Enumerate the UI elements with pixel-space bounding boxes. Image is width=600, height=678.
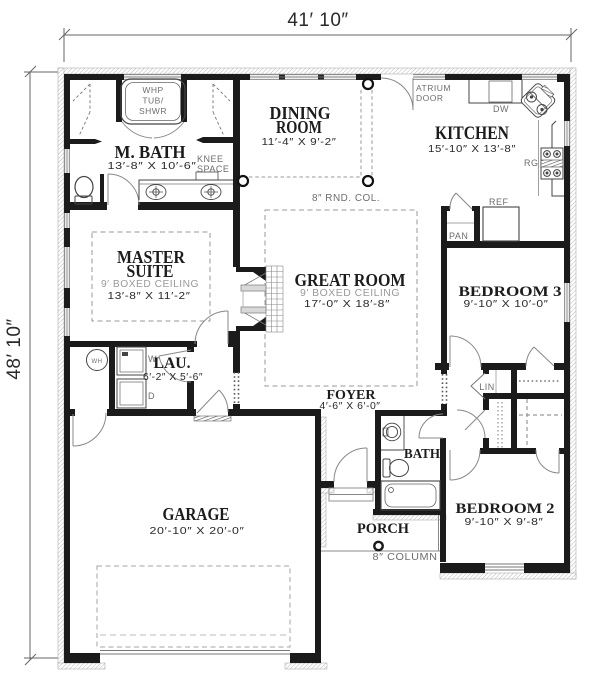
svg-text:LIN: LIN [479,382,495,392]
svg-text:15′-10″ X 13′-8″: 15′-10″ X 13′-8″ [428,144,516,155]
svg-text:9′ BOXED CEILING: 9′ BOXED CEILING [300,287,400,299]
svg-text:BATH: BATH [404,447,440,462]
svg-text:9′-10″ X 10′-0″: 9′-10″ X 10′-0″ [464,299,549,310]
svg-text:D: D [148,391,155,401]
svg-text:41′ 10″: 41′ 10″ [287,10,348,31]
svg-text:DOOR: DOOR [416,93,444,103]
svg-text:4′-6″ X 6′-0″: 4′-6″ X 6′-0″ [320,401,381,412]
svg-text:SPACE: SPACE [197,164,229,174]
svg-text:TUB/: TUB/ [142,96,164,106]
svg-text:RG: RG [524,158,539,168]
svg-text:LAU.: LAU. [154,355,191,372]
svg-text:8″ COLUMN: 8″ COLUMN [373,552,438,563]
svg-text:WHP: WHP [142,85,163,95]
svg-text:SHWR: SHWR [139,106,167,116]
svg-text:17′-0″ X 18′-8″: 17′-0″ X 18′-8″ [304,299,390,310]
svg-text:GARAGE: GARAGE [163,504,230,524]
svg-text:M. BATH: M. BATH [115,142,186,162]
svg-text:DW: DW [493,104,509,114]
svg-text:9′ BOXED CEILING: 9′ BOXED CEILING [101,278,199,290]
svg-text:BEDROOM 2: BEDROOM 2 [456,501,555,517]
svg-text:13′-8″ X 10′-6″: 13′-8″ X 10′-6″ [108,161,197,172]
svg-text:KNEE: KNEE [197,154,224,164]
svg-text:PAN: PAN [449,231,468,241]
svg-text:13′-8″ X 11′-2″: 13′-8″ X 11′-2″ [108,291,191,302]
svg-text:48′ 10″: 48′ 10″ [4,318,25,379]
svg-text:KITCHEN: KITCHEN [435,123,509,144]
svg-text:ATRIUM: ATRIUM [416,83,451,93]
svg-text:11′-4″ X 9′-2″: 11′-4″ X 9′-2″ [262,137,337,148]
svg-text:ROOM: ROOM [276,117,322,137]
svg-text:20′-10″ X 20′-0″: 20′-10″ X 20′-0″ [150,526,245,537]
svg-text:REF: REF [489,197,509,207]
svg-text:9′-10″ X 9′-8″: 9′-10″ X 9′-8″ [465,517,544,528]
svg-text:WH: WH [92,359,103,365]
svg-text:BEDROOM 3: BEDROOM 3 [459,284,562,300]
svg-text:6′-2″ X 5′-6″: 6′-2″ X 5′-6″ [143,372,203,383]
svg-text:8″ RND. COL.: 8″ RND. COL. [312,193,380,204]
svg-text:PORCH: PORCH [357,521,409,537]
